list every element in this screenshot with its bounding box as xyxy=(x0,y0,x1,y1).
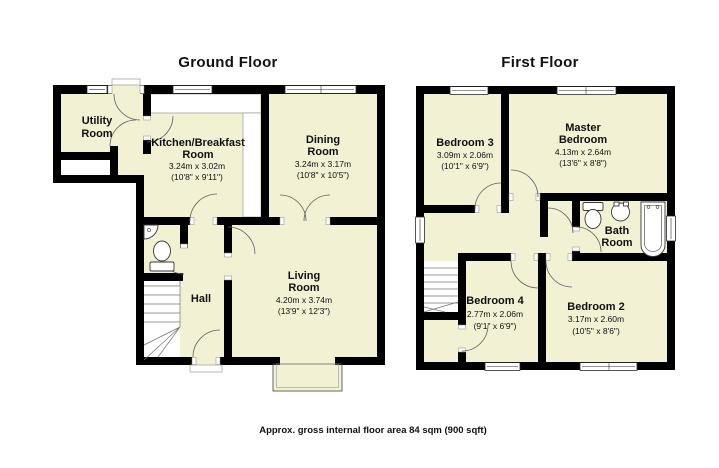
master-dims-metric: 4.13m x 2.64m xyxy=(555,147,611,157)
porch-recess xyxy=(61,160,110,175)
kitchen-dims-imperial: (10'8" x 9'11") xyxy=(171,172,223,182)
bedroom3-dims-imperial: (10'1" x 6'9") xyxy=(441,161,489,171)
basin-tap-right xyxy=(624,202,629,206)
living-label-2: Room xyxy=(288,282,319,294)
toilet-bowl xyxy=(585,210,601,229)
first-white-areas xyxy=(424,261,458,312)
floor-area-caption: Approx. gross internal floor area 84 sqm… xyxy=(27,425,719,436)
ground-stairs-area xyxy=(144,281,180,357)
living-dims-imperial: (13'9" x 12'3") xyxy=(278,306,330,316)
master-label-2: Bedroom xyxy=(559,134,608,146)
dining-label: Dining xyxy=(306,134,340,146)
hall-label: Hall xyxy=(191,293,211,305)
front-door-step xyxy=(190,365,222,372)
kitchen-counter-right xyxy=(243,113,261,217)
kitchen-label: Kitchen/Breakfast xyxy=(151,137,245,149)
back-door-opening xyxy=(112,85,140,94)
back-door-step xyxy=(112,79,140,85)
bedroom2-dims-imperial: (10'5" x 8'6") xyxy=(572,326,620,336)
master-label: Master xyxy=(565,122,601,134)
floorplan-page: Ground Floor First Floor xyxy=(0,0,719,468)
bedroom3-label: Bedroom 3 xyxy=(436,137,493,149)
utility-label-2: Room xyxy=(81,128,112,140)
first-stairs-area xyxy=(424,261,458,312)
utility-label: Utility xyxy=(82,115,113,127)
dining-dims-metric: 3.24m x 3.17m xyxy=(295,159,351,169)
living-label: Living xyxy=(288,270,320,282)
bathroom-label: Bath xyxy=(605,225,630,237)
bedroom2-dims-metric: 3.17m x 2.60m xyxy=(568,314,624,324)
master-dims-imperial: (13'6" x 8'8") xyxy=(559,158,607,168)
first-floor-plan: Bedroom 3 3.09m x 2.06m (10'1" x 6'9") M… xyxy=(405,75,695,375)
toilet-cistern xyxy=(150,262,174,271)
toilet-bowl xyxy=(154,241,171,261)
kitchen-dims-metric: 3.24m x 3.02m xyxy=(169,161,225,171)
bedroom4-label: Bedroom 4 xyxy=(466,295,524,307)
kitchen-label-2: Room xyxy=(182,149,213,161)
bedroom2-label: Bedroom 2 xyxy=(567,301,624,313)
bedroom3-dims-metric: 3.09m x 2.06m xyxy=(437,150,493,160)
basin-tap-left xyxy=(614,202,619,206)
bedroom4-dims-metric: 2.77m x 2.06m xyxy=(467,309,523,319)
first-floor-title: First Floor xyxy=(400,54,680,74)
dining-label-2: Room xyxy=(307,146,338,158)
bathroom-label-2: Room xyxy=(601,237,632,249)
bedroom4-dims-imperial: (9'1" x 6'9") xyxy=(474,321,517,331)
ground-floor-plan: Utility Room Kitchen/Breakfast Room 3.24… xyxy=(40,50,400,400)
kitchen-counter-top xyxy=(147,94,261,113)
living-dims-metric: 4.20m x 3.74m xyxy=(276,295,332,305)
dining-dims-imperial: (10'8" x 10'5") xyxy=(297,170,349,180)
